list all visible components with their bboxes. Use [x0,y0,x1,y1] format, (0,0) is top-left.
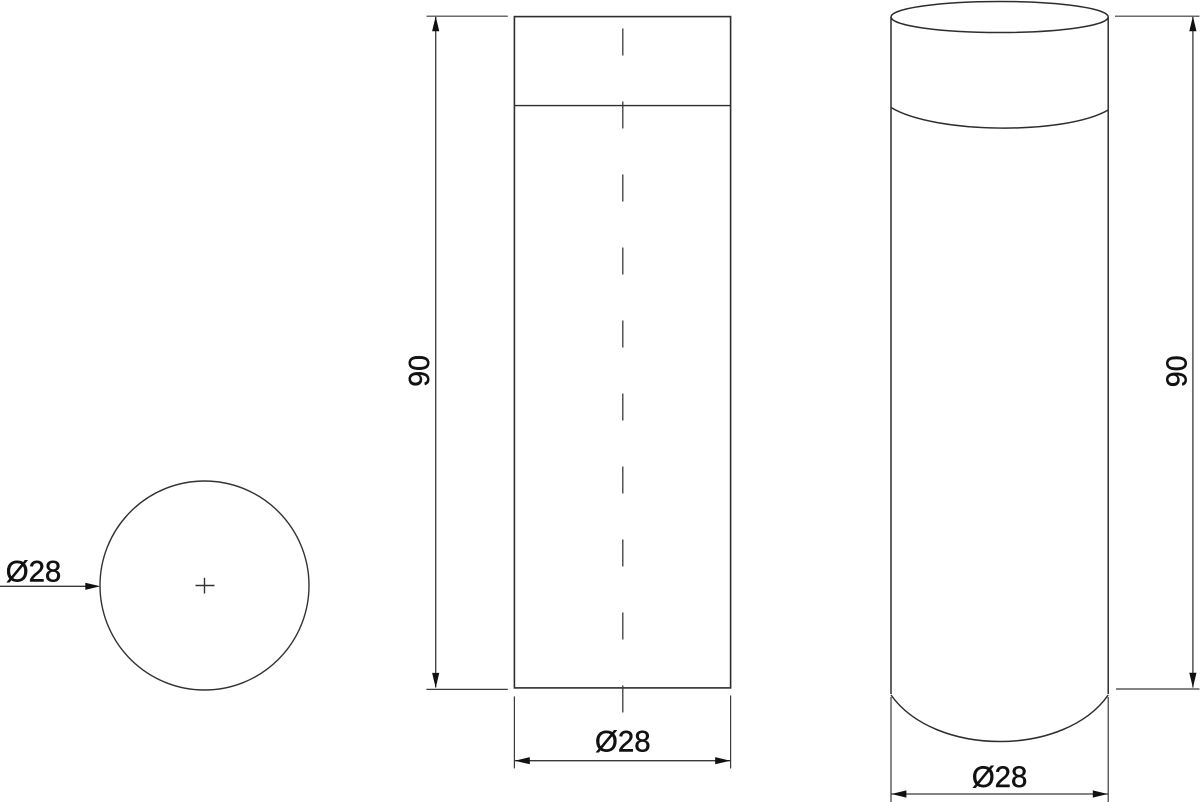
svg-text:Ø28: Ø28 [6,556,62,589]
svg-text:Ø28: Ø28 [972,761,1028,794]
svg-text:90: 90 [404,355,436,387]
svg-text:90: 90 [1161,355,1193,387]
svg-text:Ø28: Ø28 [595,726,651,759]
